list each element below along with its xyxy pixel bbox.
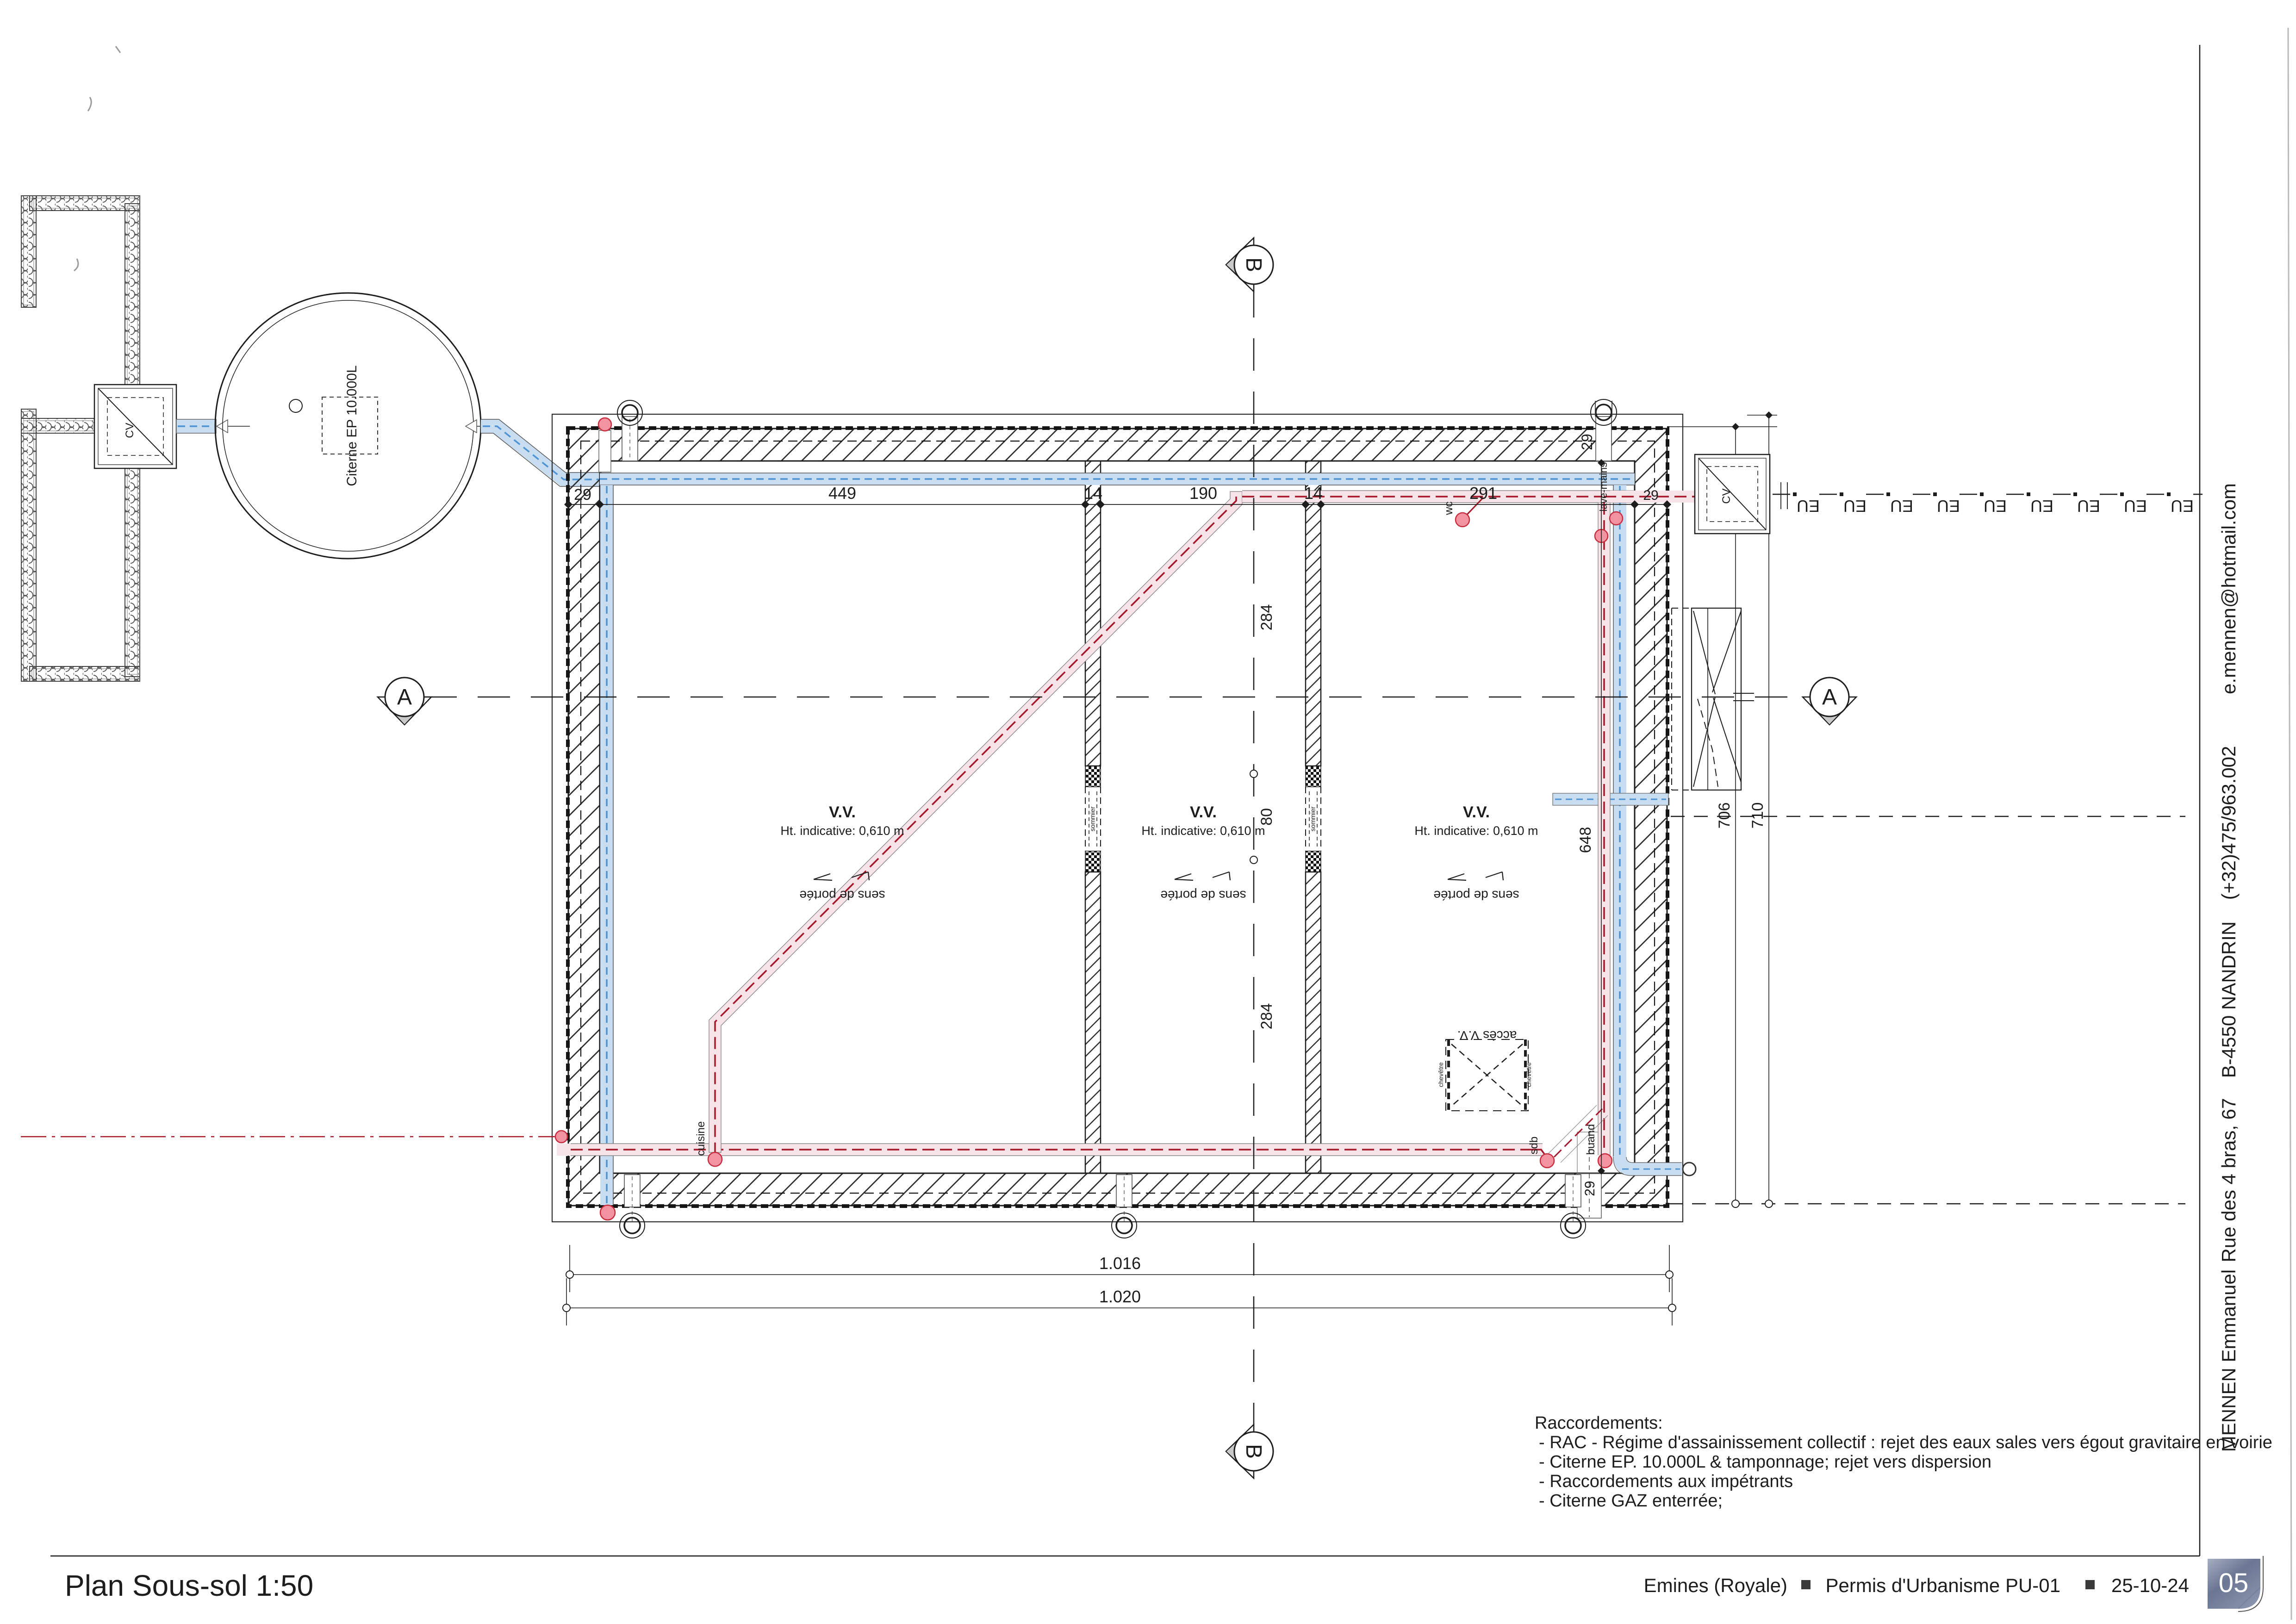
svg-text:chevêtre: chevêtre [1525,1062,1532,1087]
svg-text:05: 05 [2219,1568,2249,1598]
svg-text:29: 29 [1582,1181,1598,1196]
svg-text:EU: EU [1890,497,1913,516]
svg-text:706: 706 [1716,803,1733,829]
svg-text:80: 80 [1258,808,1276,826]
svg-text:CV: CV [124,423,136,438]
svg-text:B: B [1241,1444,1266,1459]
svg-text:EU: EU [2124,497,2147,516]
svg-text:EU: EU [2171,497,2194,516]
svg-text:- RAC - Régime d'assainissemen: - RAC - Régime d'assainissement collecti… [1539,1433,2272,1452]
svg-text:29: 29 [1643,488,1658,503]
svg-text:284: 284 [1258,1003,1276,1030]
svg-text:Permis d'Urbanisme PU-01: Permis d'Urbanisme PU-01 [1825,1574,2060,1596]
svg-text:25-10-24: 25-10-24 [2111,1574,2189,1596]
svg-text:14: 14 [1084,484,1102,503]
svg-text:291: 291 [1469,484,1497,503]
svg-text:wc: wc [1443,501,1455,515]
svg-text:Ht. indicative: 0,610 m: Ht. indicative: 0,610 m [1141,824,1265,838]
svg-text:Rue des 4 bras, 67: Rue des 4 bras, 67 [2218,1098,2240,1263]
svg-text:190: 190 [1189,484,1217,503]
svg-text:284: 284 [1258,604,1276,631]
svg-text:29: 29 [574,486,591,504]
svg-text:- Citerne GAZ enterrée;: - Citerne GAZ enterrée; [1539,1491,1723,1511]
svg-text:buand: buand [1585,1124,1597,1155]
svg-text:Plan Sous-sol 1:50: Plan Sous-sol 1:50 [65,1569,313,1602]
svg-text:B-4550 NANDRIN: B-4550 NANDRIN [2218,921,2240,1078]
svg-text:accès V.V.: accès V.V. [1457,1028,1517,1043]
svg-text:A: A [1822,685,1837,709]
svg-text:CV: CV [1720,488,1733,504]
svg-text:sens de portée: sens de portée [1433,888,1519,902]
svg-text:EU: EU [2077,497,2100,516]
svg-text:1.020: 1.020 [1099,1287,1141,1306]
svg-text:V.V.: V.V. [829,803,856,821]
svg-text:648: 648 [1577,827,1594,853]
svg-text:sens de portée: sens de portée [1160,888,1246,902]
svg-text:EU: EU [1937,497,1960,516]
svg-text:e.mennen@hotmail.com: e.mennen@hotmail.com [2218,483,2240,694]
svg-text:14: 14 [1304,484,1323,503]
svg-text:- Raccordements aux impétrants: - Raccordements aux impétrants [1539,1472,1793,1491]
svg-text:cuisine: cuisine [695,1121,707,1156]
svg-text:B: B [1241,257,1266,272]
svg-text:449: 449 [828,484,856,503]
svg-text:V.V.: V.V. [1190,803,1217,821]
svg-text:sens de portée: sens de portée [799,888,885,902]
svg-text:Citerne EP 10.000L: Citerne EP 10.000L [344,365,360,486]
svg-text:1.016: 1.016 [1099,1254,1141,1273]
svg-text:EU: EU [1984,497,2007,516]
svg-text:sommier: sommier [1309,806,1317,831]
svg-text:V.V.: V.V. [1463,803,1490,821]
svg-text:EU: EU [1797,497,1820,516]
svg-text:710: 710 [1749,803,1767,829]
svg-text:(+32)475/963.002: (+32)475/963.002 [2218,746,2240,900]
svg-text:EU: EU [1843,497,1867,516]
svg-text:Ht. indicative: 0,610 m: Ht. indicative: 0,610 m [1414,824,1538,838]
svg-text:chevêtre: chevêtre [1437,1062,1444,1087]
svg-text:sdb: sdb [1528,1137,1540,1155]
svg-text:A: A [397,685,412,709]
svg-text:- Citerne EP. 10.000L & tampon: - Citerne EP. 10.000L & tamponnage; reje… [1539,1452,1991,1472]
svg-text:29: 29 [1579,434,1595,450]
svg-text:Emines (Royale): Emines (Royale) [1644,1574,1787,1596]
svg-text:MENNEN Emmanuel: MENNEN Emmanuel [2218,1269,2240,1452]
svg-text:Raccordements:: Raccordements: [1535,1413,1663,1433]
svg-text:EU: EU [2030,497,2053,516]
svg-text:sommier: sommier [1089,806,1096,831]
svg-text:Ht. indicative: 0,610 m: Ht. indicative: 0,610 m [780,824,904,838]
